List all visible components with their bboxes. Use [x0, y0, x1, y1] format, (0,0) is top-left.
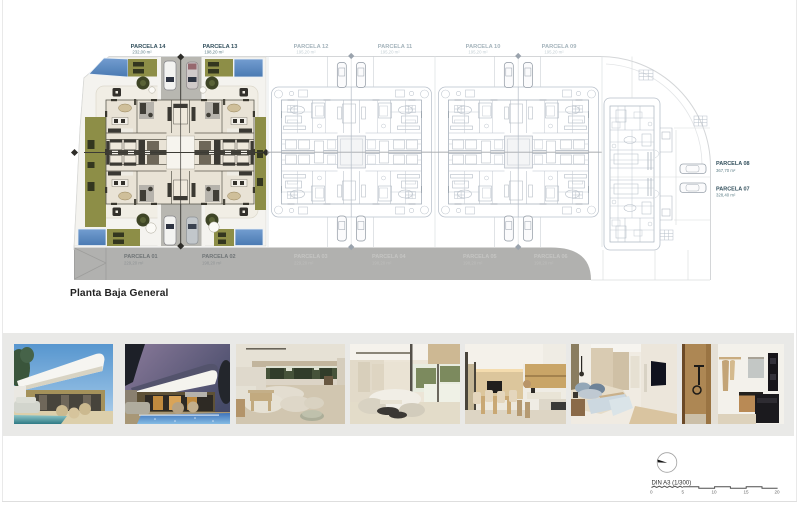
svg-text:0: 0 [650, 490, 653, 495]
svg-text:367,70 m²: 367,70 m² [716, 168, 736, 173]
svg-text:10: 10 [712, 490, 718, 495]
svg-text:PARCELA 06: PARCELA 06 [534, 254, 568, 260]
svg-text:PARCELA 01: PARCELA 01 [124, 254, 158, 260]
svg-text:195,20 m²: 195,20 m² [296, 50, 316, 55]
svg-text:195,20 m²: 195,20 m² [380, 50, 400, 55]
svg-text:229,20 m²: 229,20 m² [294, 261, 314, 266]
svg-text:328,40 m²: 328,40 m² [716, 193, 736, 198]
svg-text:PARCELA 02: PARCELA 02 [202, 254, 236, 260]
svg-text:229,20 m²: 229,20 m² [124, 261, 144, 266]
svg-text:232,00 m²: 232,00 m² [132, 50, 152, 55]
svg-text:DIN A3 (1/300): DIN A3 (1/300) [652, 481, 692, 487]
svg-text:PARCELA 03: PARCELA 03 [294, 254, 328, 260]
svg-text:195,20 m²: 195,20 m² [544, 50, 564, 55]
svg-text:PARCELA 05: PARCELA 05 [463, 254, 497, 260]
svg-text:198,20 m²: 198,20 m² [202, 261, 222, 266]
svg-text:20: 20 [775, 490, 781, 495]
svg-text:195,20 m²: 195,20 m² [468, 50, 488, 55]
svg-text:198,20 m²: 198,20 m² [372, 261, 392, 266]
svg-text:15: 15 [744, 490, 750, 495]
svg-text:198,20 m²: 198,20 m² [463, 261, 483, 266]
svg-text:198,20 m²: 198,20 m² [204, 50, 224, 55]
svg-text:5: 5 [682, 490, 685, 495]
svg-text:PARCELA 08: PARCELA 08 [716, 161, 750, 167]
svg-text:PARCELA 04: PARCELA 04 [372, 254, 407, 260]
svg-text:198,20 m²: 198,20 m² [534, 261, 554, 266]
